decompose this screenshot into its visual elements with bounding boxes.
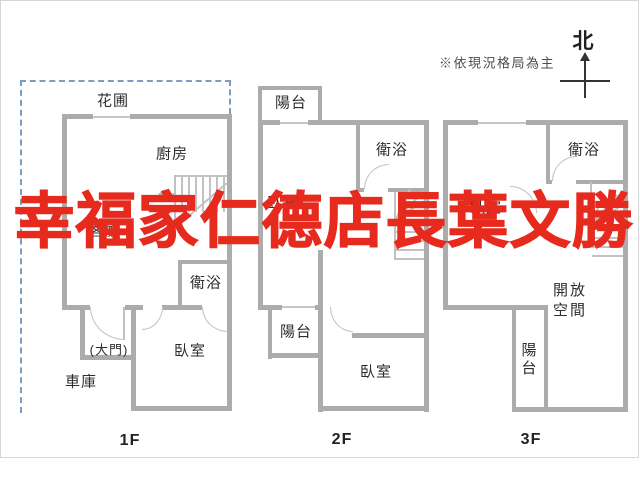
agency-watermark: 幸福家仁德店長葉文勝 <box>14 192 634 252</box>
wall-segment <box>544 305 548 412</box>
wall-segment <box>443 305 516 310</box>
wall-segment <box>443 120 628 125</box>
wall-segment <box>178 260 182 305</box>
wall-segment <box>62 305 90 310</box>
north-arrow-crossbar <box>560 80 610 82</box>
wall-segment <box>318 86 322 122</box>
room-label-entry: (大門) <box>90 340 129 359</box>
wall-segment <box>318 406 429 411</box>
window-line <box>478 122 526 124</box>
room-label-balcony-2f-mid: 陽台 <box>280 321 312 342</box>
wall-segment <box>131 305 136 411</box>
wall-segment <box>131 406 232 411</box>
room-label-garden: 花圃 <box>97 90 129 111</box>
room-label-bath-3f: 衛浴 <box>568 139 600 160</box>
stair-tread <box>592 255 623 257</box>
wall-segment <box>80 305 85 360</box>
wall-segment <box>318 250 323 412</box>
wall-segment <box>424 120 429 412</box>
wall-segment <box>258 86 322 90</box>
wall-segment <box>356 120 360 192</box>
window-line <box>280 122 308 124</box>
wall-segment <box>576 180 628 184</box>
window-line <box>282 306 315 308</box>
dashed-plot-boundary-top <box>20 80 231 82</box>
wall-segment <box>62 114 232 119</box>
north-arrow-shaft <box>584 60 586 98</box>
wall-segment <box>352 333 429 338</box>
wall-segment <box>546 120 550 182</box>
floor-plan-image: 北 ※依現況格局為主 花圃 廚房 客廳 衛浴 (大門) 臥室 車庫 1F <box>0 0 640 480</box>
north-label: 北 <box>573 25 594 55</box>
room-label-bedroom-2f: 臥室 <box>360 361 392 382</box>
room-label-bedroom-1f: 臥室 <box>174 340 206 361</box>
wall-segment <box>162 305 202 310</box>
room-label-balcony-3f: 陽台 <box>518 342 539 378</box>
floor-label-2f: 2F <box>332 431 353 449</box>
wall-segment <box>258 86 262 122</box>
floor-label-1f: 1F <box>120 432 141 450</box>
wall-segment <box>178 260 232 264</box>
wall-segment <box>268 353 322 358</box>
wall-segment <box>512 305 548 310</box>
room-label-bath-2f: 衛浴 <box>376 139 408 160</box>
room-label-garage: 車庫 <box>65 371 97 392</box>
window-line <box>93 116 130 118</box>
wall-segment <box>512 305 516 412</box>
room-label-open-space: 開放空間 <box>553 281 591 322</box>
room-label-kitchen: 廚房 <box>156 143 188 164</box>
dashed-plot-boundary-right <box>229 80 231 114</box>
wall-segment <box>268 305 272 359</box>
room-label-bath-1f: 衛浴 <box>190 272 222 293</box>
wall-segment <box>512 407 628 412</box>
wall-segment <box>623 120 628 412</box>
room-label-balcony-2f-top: 陽台 <box>275 92 307 113</box>
layout-note: ※依現況格局為主 <box>439 53 555 72</box>
floor-label-3f: 3F <box>521 431 542 449</box>
stair-tread <box>396 258 424 260</box>
